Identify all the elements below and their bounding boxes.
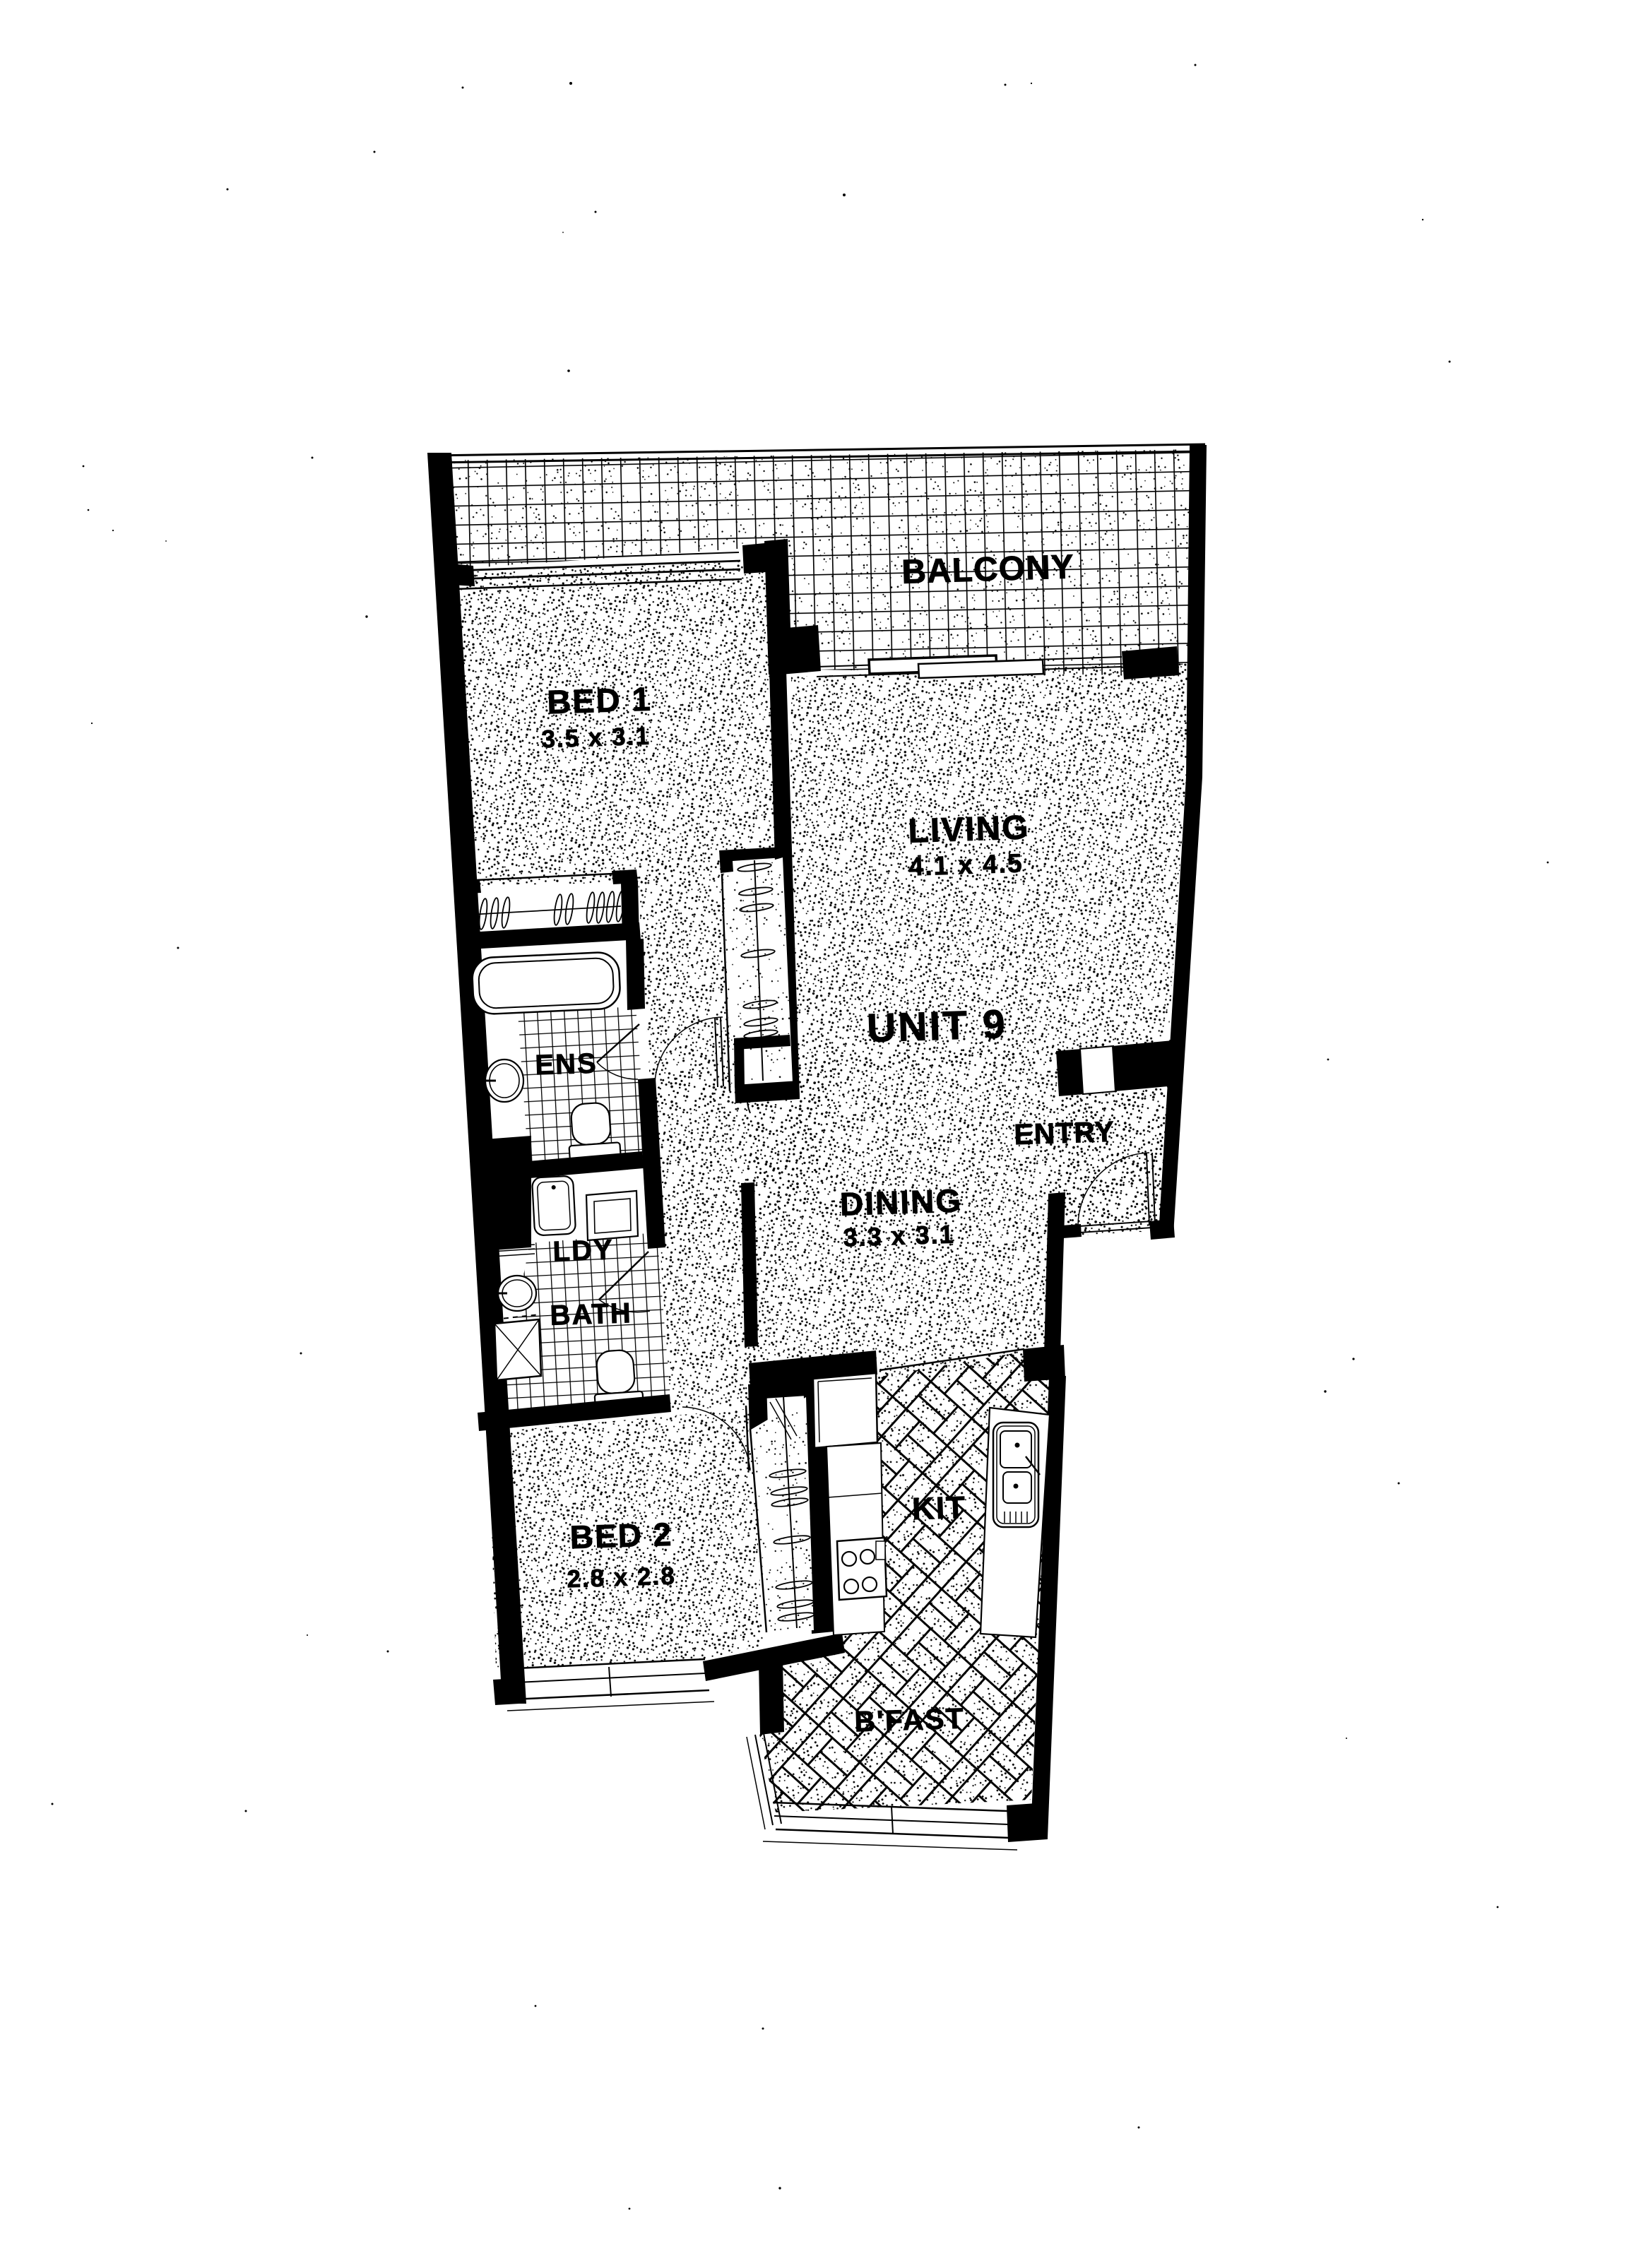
svg-text:3.5 x 3.1: 3.5 x 3.1 bbox=[541, 723, 651, 754]
svg-text:LDY: LDY bbox=[552, 1235, 614, 1268]
svg-text:DINING: DINING bbox=[839, 1182, 963, 1222]
svg-text:ENTRY: ENTRY bbox=[1014, 1115, 1115, 1151]
svg-text:UNIT 9: UNIT 9 bbox=[866, 1002, 1007, 1051]
svg-text:ENS: ENS bbox=[535, 1048, 598, 1081]
svg-text:BED 2: BED 2 bbox=[569, 1516, 673, 1556]
svg-text:3.3 x 3.1: 3.3 x 3.1 bbox=[843, 1220, 955, 1252]
svg-text:BED 1: BED 1 bbox=[546, 680, 652, 721]
svg-text:BATH: BATH bbox=[550, 1298, 632, 1331]
svg-text:LIVING: LIVING bbox=[908, 809, 1031, 850]
svg-text:KIT: KIT bbox=[911, 1490, 966, 1526]
svg-text:BALCONY: BALCONY bbox=[901, 548, 1075, 591]
svg-text:2.8 x 2.8: 2.8 x 2.8 bbox=[567, 1562, 676, 1593]
svg-text:4.1 x 4.5: 4.1 x 4.5 bbox=[908, 848, 1024, 881]
svg-text:B'FAST: B'FAST bbox=[854, 1702, 966, 1738]
